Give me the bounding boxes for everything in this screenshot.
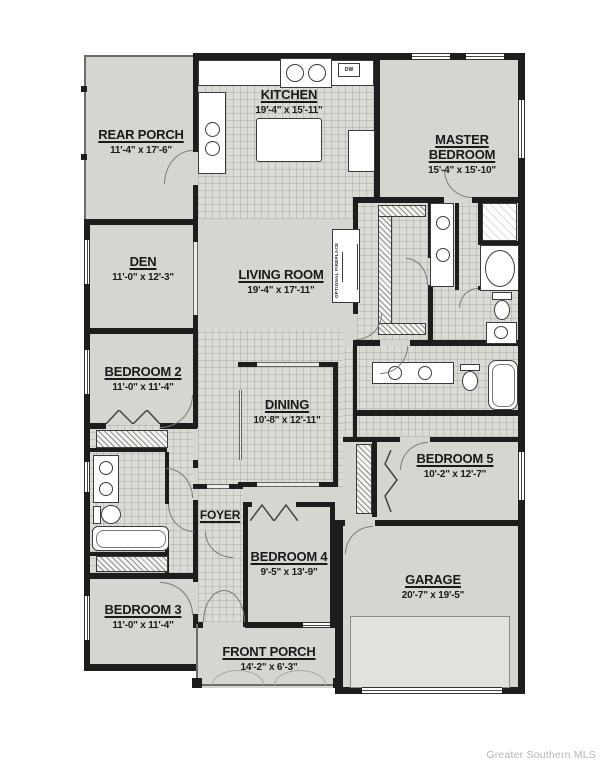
wall-segment [353, 340, 380, 346]
wall-segment [193, 460, 198, 468]
tub-basin [96, 530, 166, 548]
room-dims: 10'-2" x 12'-7" [394, 469, 516, 481]
room-name: GARAGE [360, 573, 506, 588]
room-label-front-porch: FRONT PORCH 14'-2" x 6'-3" [200, 645, 338, 673]
wall-segment [89, 448, 167, 452]
burner [308, 64, 326, 82]
master-closet-shelving [378, 205, 426, 217]
refrigerator [348, 130, 375, 172]
closet-shelving [96, 556, 168, 572]
room-dims: 11'-4" x 17'-6" [85, 145, 197, 157]
wall-segment [330, 622, 343, 628]
garage-apron [350, 616, 510, 688]
dishwasher: DW [338, 63, 360, 77]
room-dims: 20'-7" x 19'-5" [360, 590, 506, 602]
wall-segment [430, 437, 523, 442]
floor-plan: DW OPTIONAL FIREPLACE [0, 0, 600, 768]
room-label-kitchen: KITCHEN 19'-4" x 15'-11" [209, 88, 369, 116]
room-label-bedroom-4: BEDROOM 4 9'-5" x 13'-9" [246, 550, 332, 578]
vanity-sink [99, 482, 113, 496]
closet-shelving [96, 430, 168, 448]
kitchen-island [256, 118, 322, 162]
porch-post [81, 86, 87, 92]
room-dims: 11'-0" x 11'-4" [89, 382, 197, 394]
dining-cased-opening [257, 482, 319, 487]
wall-segment [353, 346, 357, 437]
toilet-tank [460, 364, 480, 371]
room-name: FRONT PORCH [200, 645, 338, 660]
wall-segment [84, 328, 197, 334]
closet-shelving [356, 444, 372, 514]
window [303, 622, 330, 628]
wall-segment [353, 410, 523, 416]
wall-segment [455, 203, 459, 290]
room-dims: 11'-0" x 12'-3" [89, 272, 197, 284]
dining-cased-opening [257, 362, 319, 367]
room-label-dining: DINING 10'-8" x 12'-11" [239, 398, 335, 426]
room-name: LIVING ROOM [201, 268, 361, 283]
wall-segment [319, 362, 338, 367]
window [412, 53, 450, 60]
room-dims: 15'-4" x 15'-10" [402, 165, 522, 177]
room-label-bedroom-2: BEDROOM 2 11'-0" x 11'-4" [89, 365, 197, 393]
room-name: REAR PORCH [85, 128, 197, 143]
room-label-garage: GARAGE 20'-7" x 19'-5" [360, 573, 506, 601]
wall-segment [229, 484, 243, 489]
dishwasher-label: DW [345, 68, 353, 73]
kitchen-sink [205, 122, 220, 137]
wall-segment [372, 440, 377, 517]
burner [286, 64, 304, 82]
toilet-tank [93, 506, 101, 524]
wall-segment [84, 573, 197, 579]
bifold-door [106, 410, 160, 424]
vanity-sink [436, 248, 450, 262]
room-name: BEDROOM 4 [246, 550, 332, 565]
bifold-door [250, 504, 298, 521]
room-label-rear-porch: REAR PORCH 11'-4" x 17'-6" [85, 128, 197, 156]
wall-segment [238, 362, 257, 367]
room-dims: 9'-5" x 13'-9" [246, 567, 332, 579]
porch-column [333, 678, 343, 688]
wall-segment [338, 520, 345, 526]
master-tub [480, 245, 519, 291]
room-dims: 11'-0" x 11'-4" [89, 620, 197, 632]
watermark: Greater Southern MLS [486, 749, 596, 761]
wall-segment [375, 520, 525, 526]
room-label-den: DEN 11'-0" x 12'-3" [89, 255, 197, 283]
vanity-sink [418, 366, 432, 380]
room-name: BEDROOM 3 [89, 603, 197, 618]
room-dims: 10'-8" x 12'-11" [239, 415, 335, 427]
porch-column [192, 678, 202, 688]
wall-segment [84, 219, 197, 225]
kitchen-sink [205, 141, 220, 156]
porch-edge [196, 624, 198, 686]
wall-segment [84, 423, 106, 429]
room-label-living-room: LIVING ROOM 19'-4" x 17'-11" [201, 268, 361, 296]
master-closet-shelving [378, 323, 426, 335]
room-name: BEDROOM 5 [394, 452, 516, 467]
window [84, 462, 90, 492]
window [466, 53, 504, 60]
toilet-bowl [462, 371, 478, 391]
wall-segment [193, 219, 198, 242]
room-name: DINING [239, 398, 335, 413]
wall-segment [245, 622, 303, 628]
wall-segment [84, 664, 197, 671]
room-dims: 14'-2" x 6'-3" [200, 662, 338, 674]
master-shower [482, 203, 517, 241]
tub-basin [485, 250, 515, 287]
wall-segment [193, 484, 207, 489]
room-dims: 19'-4" x 17'-11" [201, 285, 361, 297]
wall-segment [193, 185, 198, 222]
room-name: DEN [89, 255, 197, 270]
wall-segment [319, 482, 338, 487]
vanity-sink [494, 326, 508, 339]
room-label-bedroom-3: BEDROOM 3 11'-0" x 11'-4" [89, 603, 197, 631]
foyer-opening [207, 484, 229, 489]
room-label-bedroom-5: BEDROOM 5 10'-2" x 12'-7" [394, 452, 516, 480]
room-dims: 19'-4" x 15'-11" [209, 105, 369, 117]
room-label-foyer: FOYER [196, 509, 244, 523]
tub-basin [492, 364, 515, 407]
window [518, 452, 525, 500]
wall-segment [374, 55, 380, 200]
vanity-sink [436, 216, 450, 230]
room-name: BEDROOM 2 [89, 365, 197, 380]
left-bath-tub [92, 526, 169, 551]
garage-door [362, 687, 502, 694]
porch-screen-wall [84, 55, 195, 57]
wall-segment [428, 285, 433, 340]
hall-bath-tub [488, 360, 518, 410]
room-name: MASTER BEDROOM [422, 133, 502, 163]
room-name: FOYER [196, 509, 244, 523]
toilet-tank [492, 292, 512, 300]
toilet-bowl [494, 300, 510, 320]
room-name: KITCHEN [209, 88, 369, 103]
room-label-master-bedroom: MASTER BEDROOM 15'-4" x 15'-10" [402, 133, 522, 176]
toilet-bowl [101, 505, 121, 524]
vanity-sink [99, 461, 113, 475]
